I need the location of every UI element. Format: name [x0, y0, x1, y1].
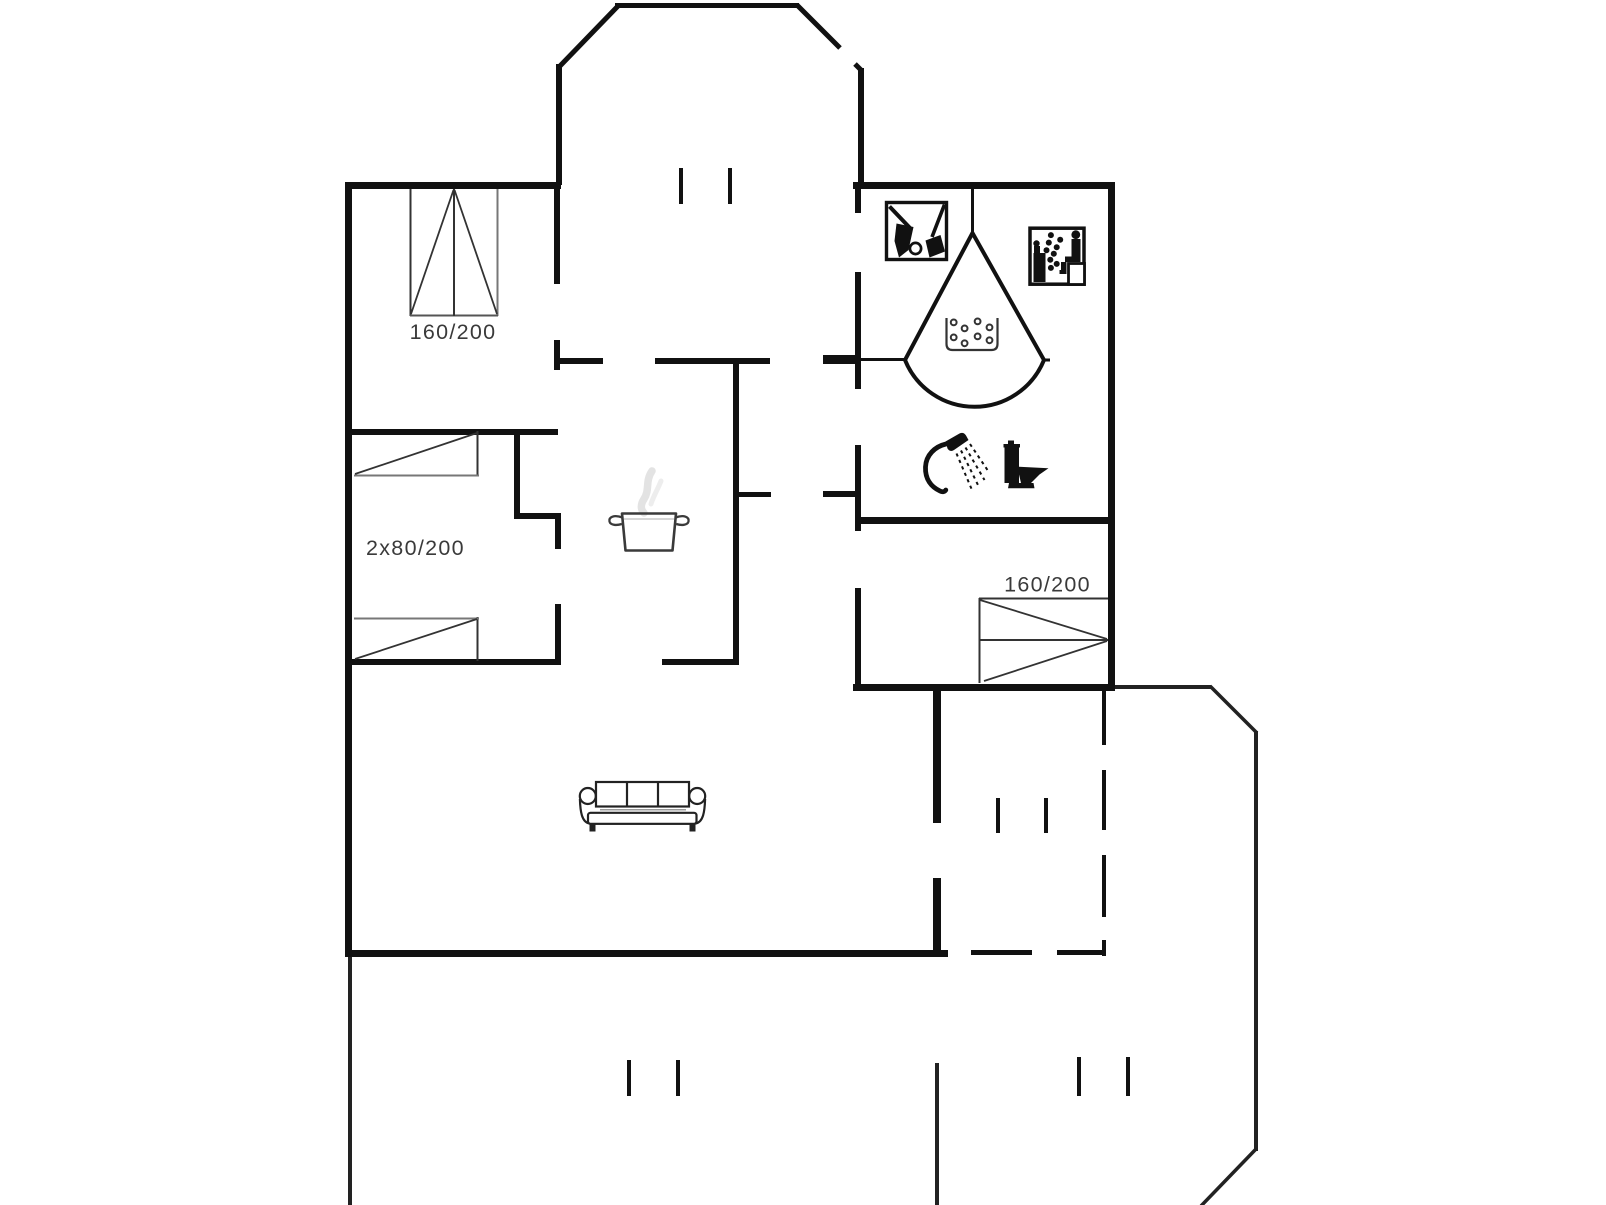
svg-text:2x80/200: 2x80/200: [366, 536, 465, 560]
svg-text:160/200: 160/200: [410, 320, 497, 344]
svg-text:160/200: 160/200: [1004, 573, 1091, 597]
